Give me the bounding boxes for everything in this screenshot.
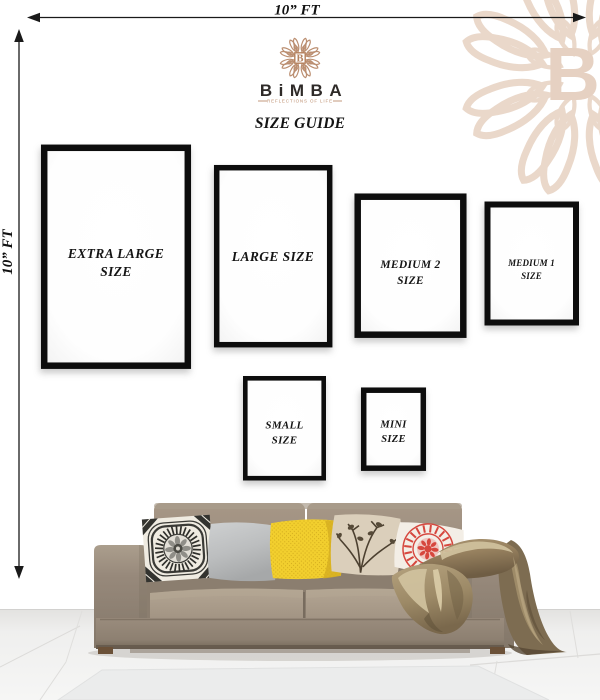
svg-text:B: B — [545, 33, 600, 117]
svg-text:10” FT: 10” FT — [0, 228, 16, 274]
svg-text:B: B — [297, 54, 304, 65]
svg-text:SIZE GUIDE: SIZE GUIDE — [255, 115, 345, 132]
svg-text:10” FT: 10” FT — [274, 3, 320, 19]
svg-text:LARGE SIZE: LARGE SIZE — [231, 249, 314, 264]
svg-text:REFLECTIONS OF LIFE: REFLECTIONS OF LIFE — [267, 99, 333, 104]
svg-text:BiMBA: BiMBA — [260, 81, 348, 100]
